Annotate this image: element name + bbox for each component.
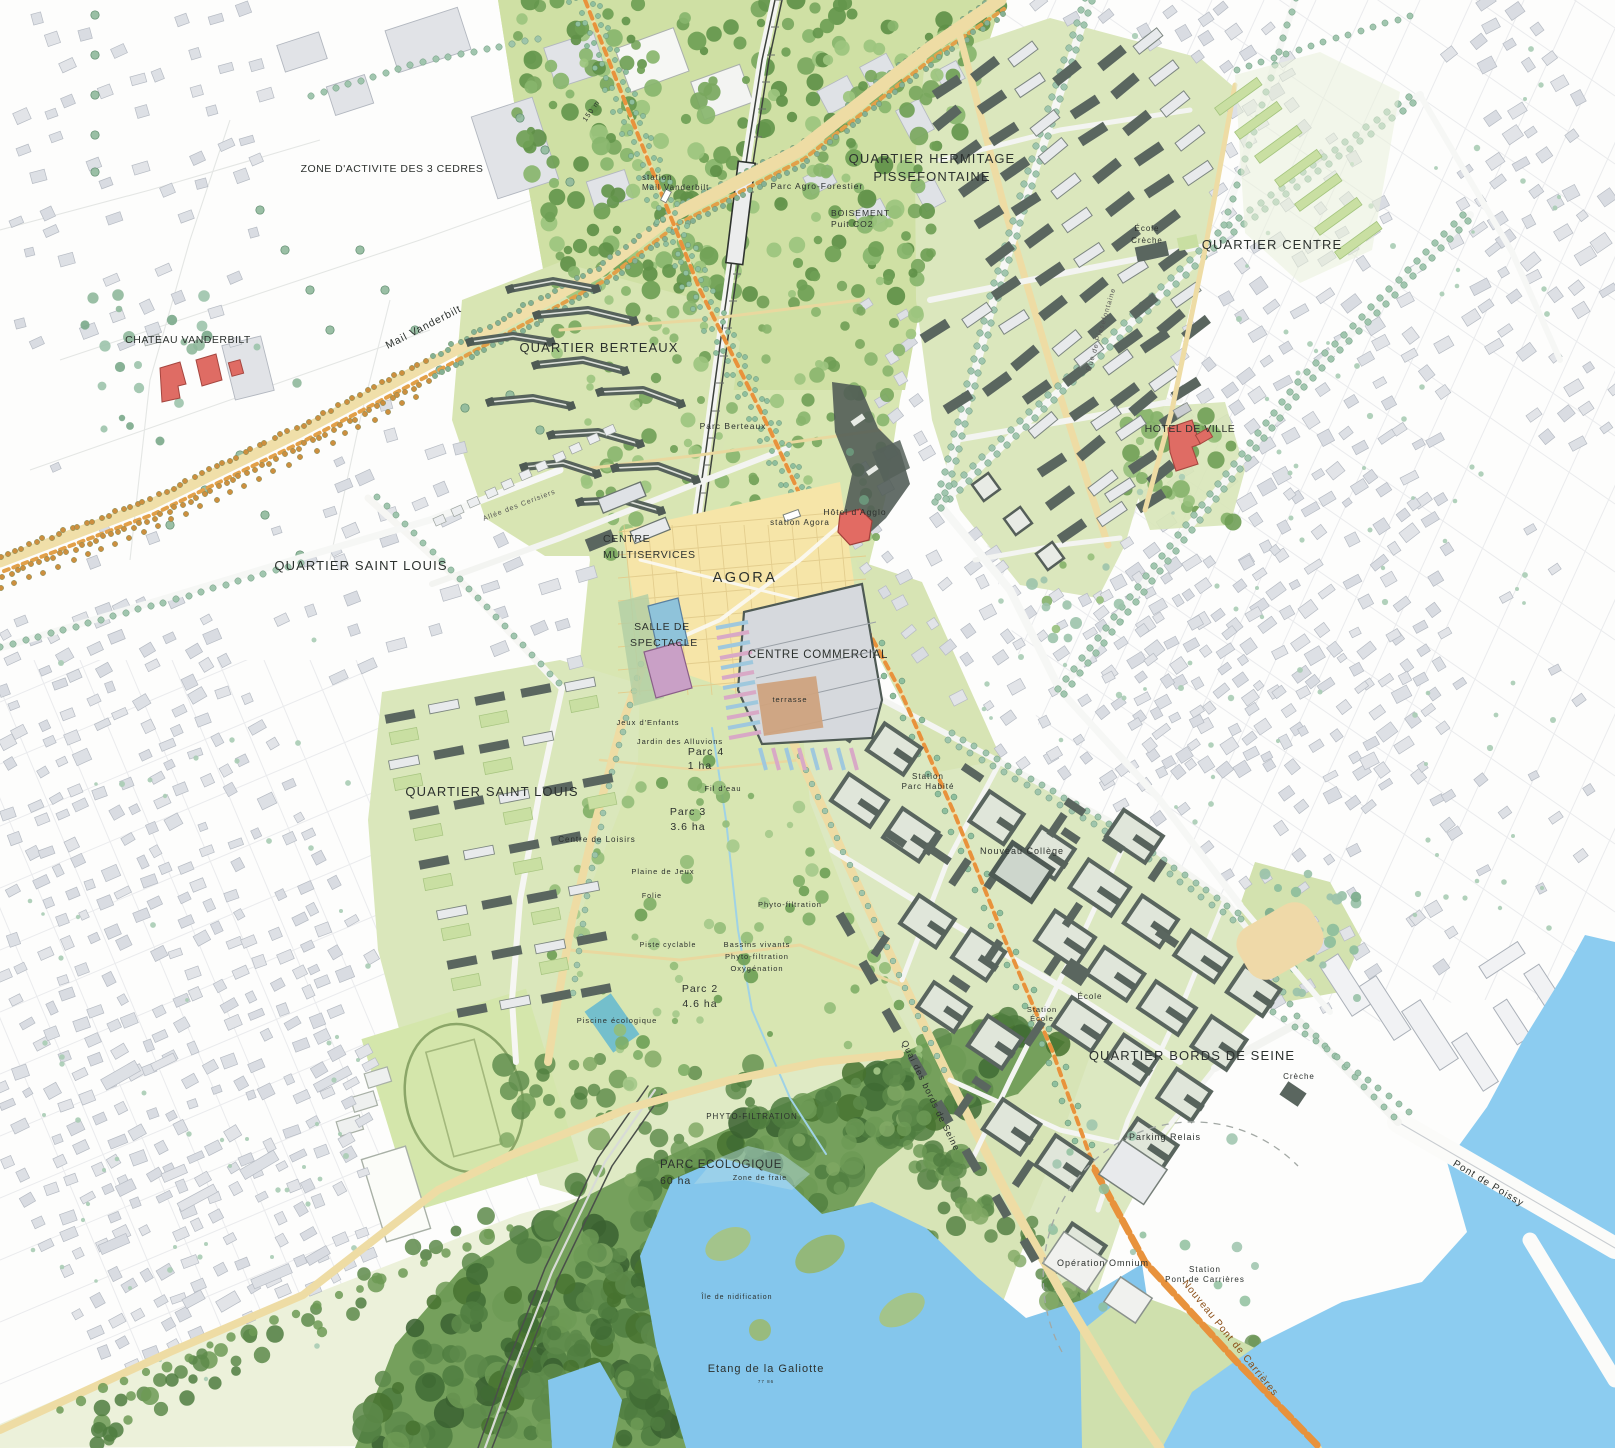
svg-text:Opération Omnium: Opération Omnium [1057, 1258, 1149, 1268]
svg-text:Etang de la Galiotte: Etang de la Galiotte [708, 1363, 825, 1375]
svg-text:Phyto-filtration: Phyto-filtration [758, 900, 822, 909]
svg-text:Nouveau Collège: Nouveau Collège [980, 846, 1064, 856]
svg-text:École: École [1030, 1014, 1054, 1023]
svg-text:Centre de Loisirs: Centre de Loisirs [558, 835, 635, 844]
svg-text:QUARTIER SAINT LOUIS: QUARTIER SAINT LOUIS [405, 784, 578, 799]
svg-text:PISSEFONTAINE: PISSEFONTAINE [873, 169, 990, 184]
svg-text:Piste cyclable: Piste cyclable [640, 942, 697, 949]
svg-text:Phyto-filtration: Phyto-filtration [725, 952, 789, 961]
svg-text:École: École [1077, 992, 1102, 1001]
svg-text:Jeux d'Enfants: Jeux d'Enfants [617, 718, 680, 727]
svg-text:Mail Vanderbilt: Mail Vanderbilt [642, 183, 709, 192]
svg-text:QUARTIER SAINT LOUIS: QUARTIER SAINT LOUIS [274, 558, 447, 573]
svg-text:Pont de Carrières: Pont de Carrières [1165, 1275, 1245, 1284]
svg-text:CENTRE COMMERCIAL: CENTRE COMMERCIAL [748, 649, 888, 661]
svg-text:Parc 2: Parc 2 [682, 983, 718, 995]
svg-text:Parc Berteaux: Parc Berteaux [700, 421, 767, 431]
svg-text:CENTRE: CENTRE [603, 533, 650, 545]
svg-text:École: École [1134, 224, 1159, 233]
svg-text:Zone de fraie: Zone de fraie [733, 1175, 787, 1182]
svg-text:BOISEMENT: BOISEMENT [831, 208, 890, 218]
svg-text:Parc 3: Parc 3 [670, 806, 706, 818]
svg-text:Île de nidification: Île de nidification [700, 1292, 772, 1301]
svg-text:PHYTO-FILTRATION: PHYTO-FILTRATION [706, 1112, 798, 1121]
svg-text:QUARTIER BERTEAUX: QUARTIER BERTEAUX [519, 340, 678, 355]
svg-text:Crèche: Crèche [1283, 1072, 1315, 1081]
svg-text:SPECTACLE: SPECTACLE [630, 637, 698, 649]
svg-text:Hôtel d'Agglo: Hôtel d'Agglo [823, 507, 886, 517]
svg-text:CHATEAU VANDERBILT: CHATEAU VANDERBILT [125, 334, 251, 346]
svg-text:77 86: 77 86 [758, 1379, 774, 1384]
svg-text:Parc Habité: Parc Habité [902, 782, 955, 791]
svg-text:Station: Station [912, 772, 944, 781]
svg-text:Bassins vivants: Bassins vivants [724, 940, 791, 949]
svg-text:ZONE D'ACTIVITE DES 3 CEDRES: ZONE D'ACTIVITE DES 3 CEDRES [301, 163, 484, 175]
svg-text:60 ha: 60 ha [660, 1175, 691, 1187]
svg-text:station Agora: station Agora [770, 518, 830, 527]
svg-text:Jardin des Alluvions: Jardin des Alluvions [637, 737, 723, 746]
svg-text:QUARTIER CENTRE: QUARTIER CENTRE [1202, 237, 1343, 252]
svg-text:Parc 4: Parc 4 [688, 746, 724, 758]
svg-text:Crèche: Crèche [1131, 236, 1163, 245]
svg-text:Plaine de Jeux: Plaine de Jeux [631, 867, 694, 876]
svg-text:HOTEL DE VILLE: HOTEL DE VILLE [1145, 423, 1236, 435]
svg-text:MULTISERVICES: MULTISERVICES [603, 549, 696, 561]
svg-text:AGORA: AGORA [713, 570, 778, 586]
svg-text:Folie: Folie [642, 893, 662, 900]
svg-text:4.6 ha: 4.6 ha [682, 998, 717, 1010]
svg-text:QUARTIER BORDS DE SEINE: QUARTIER BORDS DE SEINE [1089, 1048, 1295, 1063]
svg-text:3.6 ha: 3.6 ha [670, 821, 705, 833]
svg-text:Station: Station [1189, 1265, 1221, 1274]
svg-text:Piscine écologique: Piscine écologique [577, 1016, 658, 1025]
svg-text:PARC ECOLOGIQUE: PARC ECOLOGIQUE [660, 1159, 782, 1171]
svg-text:station: station [642, 173, 673, 182]
svg-text:SALLE DE: SALLE DE [634, 621, 690, 633]
svg-text:QUARTIER HERMITAGE: QUARTIER HERMITAGE [849, 151, 1016, 166]
svg-text:Parking Relais: Parking Relais [1129, 1132, 1201, 1142]
svg-text:Puit CO2: Puit CO2 [831, 219, 874, 229]
svg-text:Fil d'eau: Fil d'eau [704, 784, 741, 793]
svg-text:Station: Station [1027, 1005, 1057, 1014]
svg-text:1 ha: 1 ha [688, 760, 712, 772]
svg-text:terrasse: terrasse [772, 695, 807, 704]
svg-text:Parc Agro-Forestier: Parc Agro-Forestier [771, 181, 864, 191]
svg-text:Oxygénation: Oxygénation [730, 964, 783, 973]
